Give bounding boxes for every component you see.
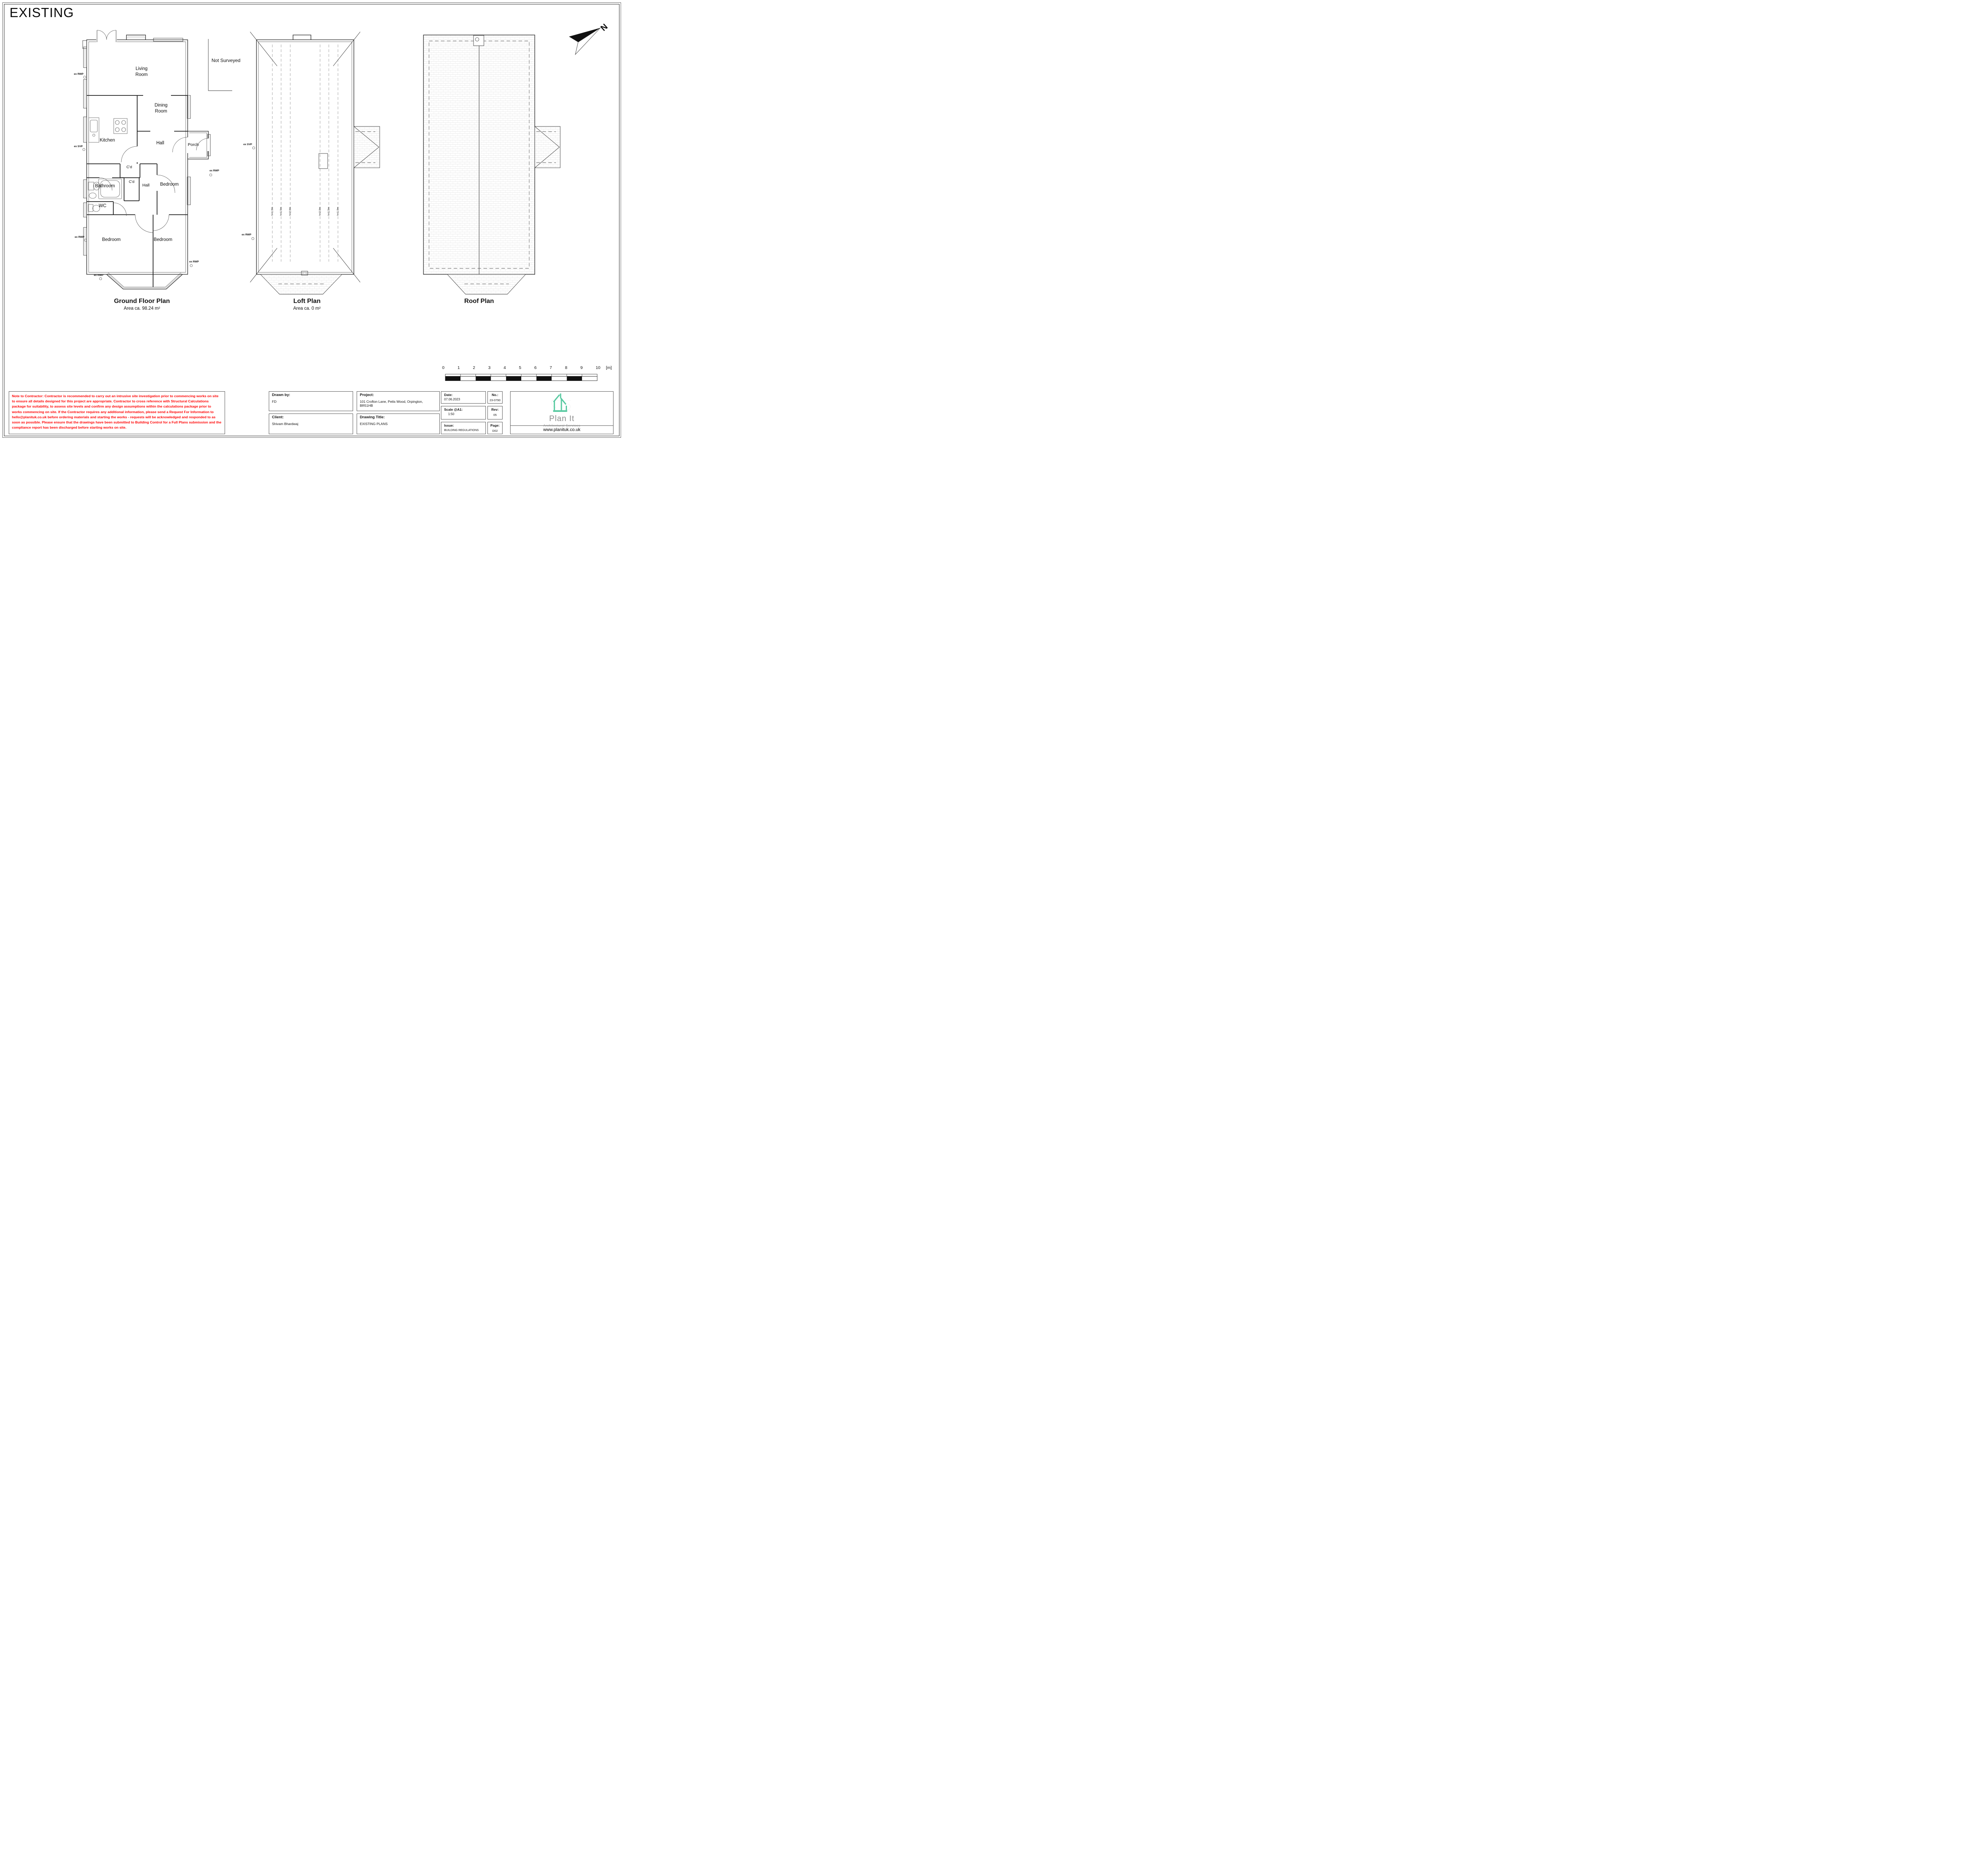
logo-name: Plan It [511, 414, 613, 423]
logo-url: www.planituk.co.uk [511, 425, 613, 434]
scale-bar-unit: [m] [606, 365, 612, 370]
contractor-note-box: Note to Contractor: Contractor is recomm… [9, 391, 225, 434]
not-surveyed-boundary [208, 39, 232, 91]
scale-tick: 3 [488, 365, 491, 370]
scale-bar-ticks: 0 1 2 3 4 5 6 7 8 9 10 [442, 365, 600, 370]
room-label-inner-hall: Hall [136, 183, 155, 188]
scale-tick: 10 [596, 365, 600, 370]
titleblock-scale: Scale @A1: 1:50 [441, 406, 486, 419]
room-label-dining: Dining Room [141, 103, 181, 115]
titleblock-drawing-title: Drawing Title: EXISTING PLANS [357, 414, 440, 434]
loft-area: Area ca. 0 m² [259, 306, 355, 311]
room-label-bedroom-br: Bedroom [147, 237, 179, 243]
contractor-note-text: Note to Contractor: Contractor is recomm… [12, 394, 222, 431]
project-label: Project: [360, 393, 437, 397]
titleblock-issue: Issue: BUILDING REGULATIONS [441, 422, 486, 434]
ground-floor-area: Area ca. 98.24 m² [94, 306, 190, 311]
north-label: N [599, 22, 610, 33]
north-arrow-icon: N [569, 22, 610, 54]
rev-label: Rev: [488, 408, 502, 412]
roof-linework [423, 35, 560, 294]
scale-tick: 9 [580, 365, 583, 370]
scale-tick: 0 [442, 365, 445, 370]
ground-floor-caption: Ground Floor Plan [94, 298, 190, 305]
loft-caption: Loft Plan [259, 298, 355, 305]
scale-value: 1:50 [444, 412, 483, 416]
issue-label: Issue: [444, 423, 483, 427]
issue-value: BUILDING REGULATIONS [444, 428, 483, 432]
not-surveyed-label: Not Surveyed [212, 58, 241, 63]
number-label: No.: [488, 393, 502, 397]
room-label-bedroom-bl: Bedroom [95, 237, 127, 243]
drawing-sheet: EXISTING [0, 0, 623, 440]
kitchen-hob-icon [114, 118, 127, 134]
scale-tick: 2 [473, 365, 475, 370]
scale-tick: 8 [565, 365, 567, 370]
scale-tick: 7 [549, 365, 552, 370]
loft-linework [250, 32, 380, 294]
room-label-living: Living Room [122, 66, 161, 78]
drawn-by-value: FD [272, 400, 350, 404]
scale-tick: 1 [458, 365, 460, 370]
loft-height-line-label: h=1.5m [328, 203, 330, 220]
page-value: D02 [488, 429, 502, 433]
annotation-rwp: ex RWP [68, 73, 83, 76]
room-label-closet1: C'd [121, 165, 137, 170]
planit-logo-icon [545, 392, 579, 413]
loft-height-line-label: h=1.5m [280, 203, 283, 220]
annotation-svp: ex SVP [235, 143, 252, 146]
titleblock-project: Project: 101 Crofton Lane, Petts Wood, O… [357, 391, 440, 411]
titleblock-date: Date: 07.06.2023 [441, 391, 486, 404]
rev-value: 05 [488, 413, 502, 417]
number-value: 23-0790 [488, 398, 502, 402]
roof-caption: Roof Plan [431, 298, 527, 305]
loft-pipe-markers [252, 147, 255, 240]
scale-bar [445, 374, 597, 381]
client-value: Shivam Bhardwaj [272, 422, 350, 426]
project-value: 101 Crofton Lane, Petts Wood, Orpington,… [360, 400, 437, 408]
titleblock-number: No.: 23-0790 [487, 391, 503, 404]
date-value: 07.06.2023 [444, 398, 483, 401]
room-label-hall: Hall [149, 140, 171, 146]
loft-height-line-label: h=2.0m [319, 203, 322, 220]
room-label-bathroom: Bathroom [89, 183, 121, 189]
titleblock-page: Page: D02 [487, 422, 503, 434]
titleblock-client: Client: Shivam Bhardwaj [269, 414, 353, 434]
scale-tick: 5 [519, 365, 521, 370]
room-label-bedroom-right: Bedroom [155, 182, 184, 188]
room-label-kitchen: Kitchen [93, 138, 122, 144]
loft-height-line-label: h=1.0m [271, 203, 274, 220]
annotation-svp: ex SVP [67, 145, 83, 148]
basin-icon [89, 193, 96, 198]
scale-tick: 4 [504, 365, 506, 370]
scale-label: Scale @A1: [444, 408, 483, 412]
room-label-wc: WC [95, 203, 111, 209]
loft-height-line-label: h=1.0m [337, 203, 340, 220]
client-label: Client: [272, 415, 350, 419]
annotation-rwp: ex RWP [189, 260, 199, 263]
annotation-rwp: ex RWP [210, 169, 219, 172]
titleblock-drawn-by: Drawn by: FD [269, 391, 353, 411]
date-label: Date: [444, 393, 483, 397]
plans-linework: N [0, 0, 623, 440]
scale-tick: 6 [534, 365, 537, 370]
page-label: Page: [488, 423, 502, 427]
logo-cell: Plan It Architectural Services www.plani… [510, 391, 613, 434]
annotation-rwp: ex RWP [94, 274, 103, 277]
annotation-rwp: ex RWP [235, 233, 251, 236]
titleblock-rev: Rev: 05 [487, 406, 503, 419]
drawing-title-label: Drawing Title: [360, 415, 437, 419]
drawn-by-label: Drawn by: [272, 393, 350, 397]
annotation-rwp: ex RWP [68, 236, 84, 239]
loft-height-line-label: h=2.0m [289, 203, 292, 220]
drawing-title-value: EXISTING PLANS [360, 422, 437, 426]
room-label-porch: Porch [183, 142, 203, 148]
